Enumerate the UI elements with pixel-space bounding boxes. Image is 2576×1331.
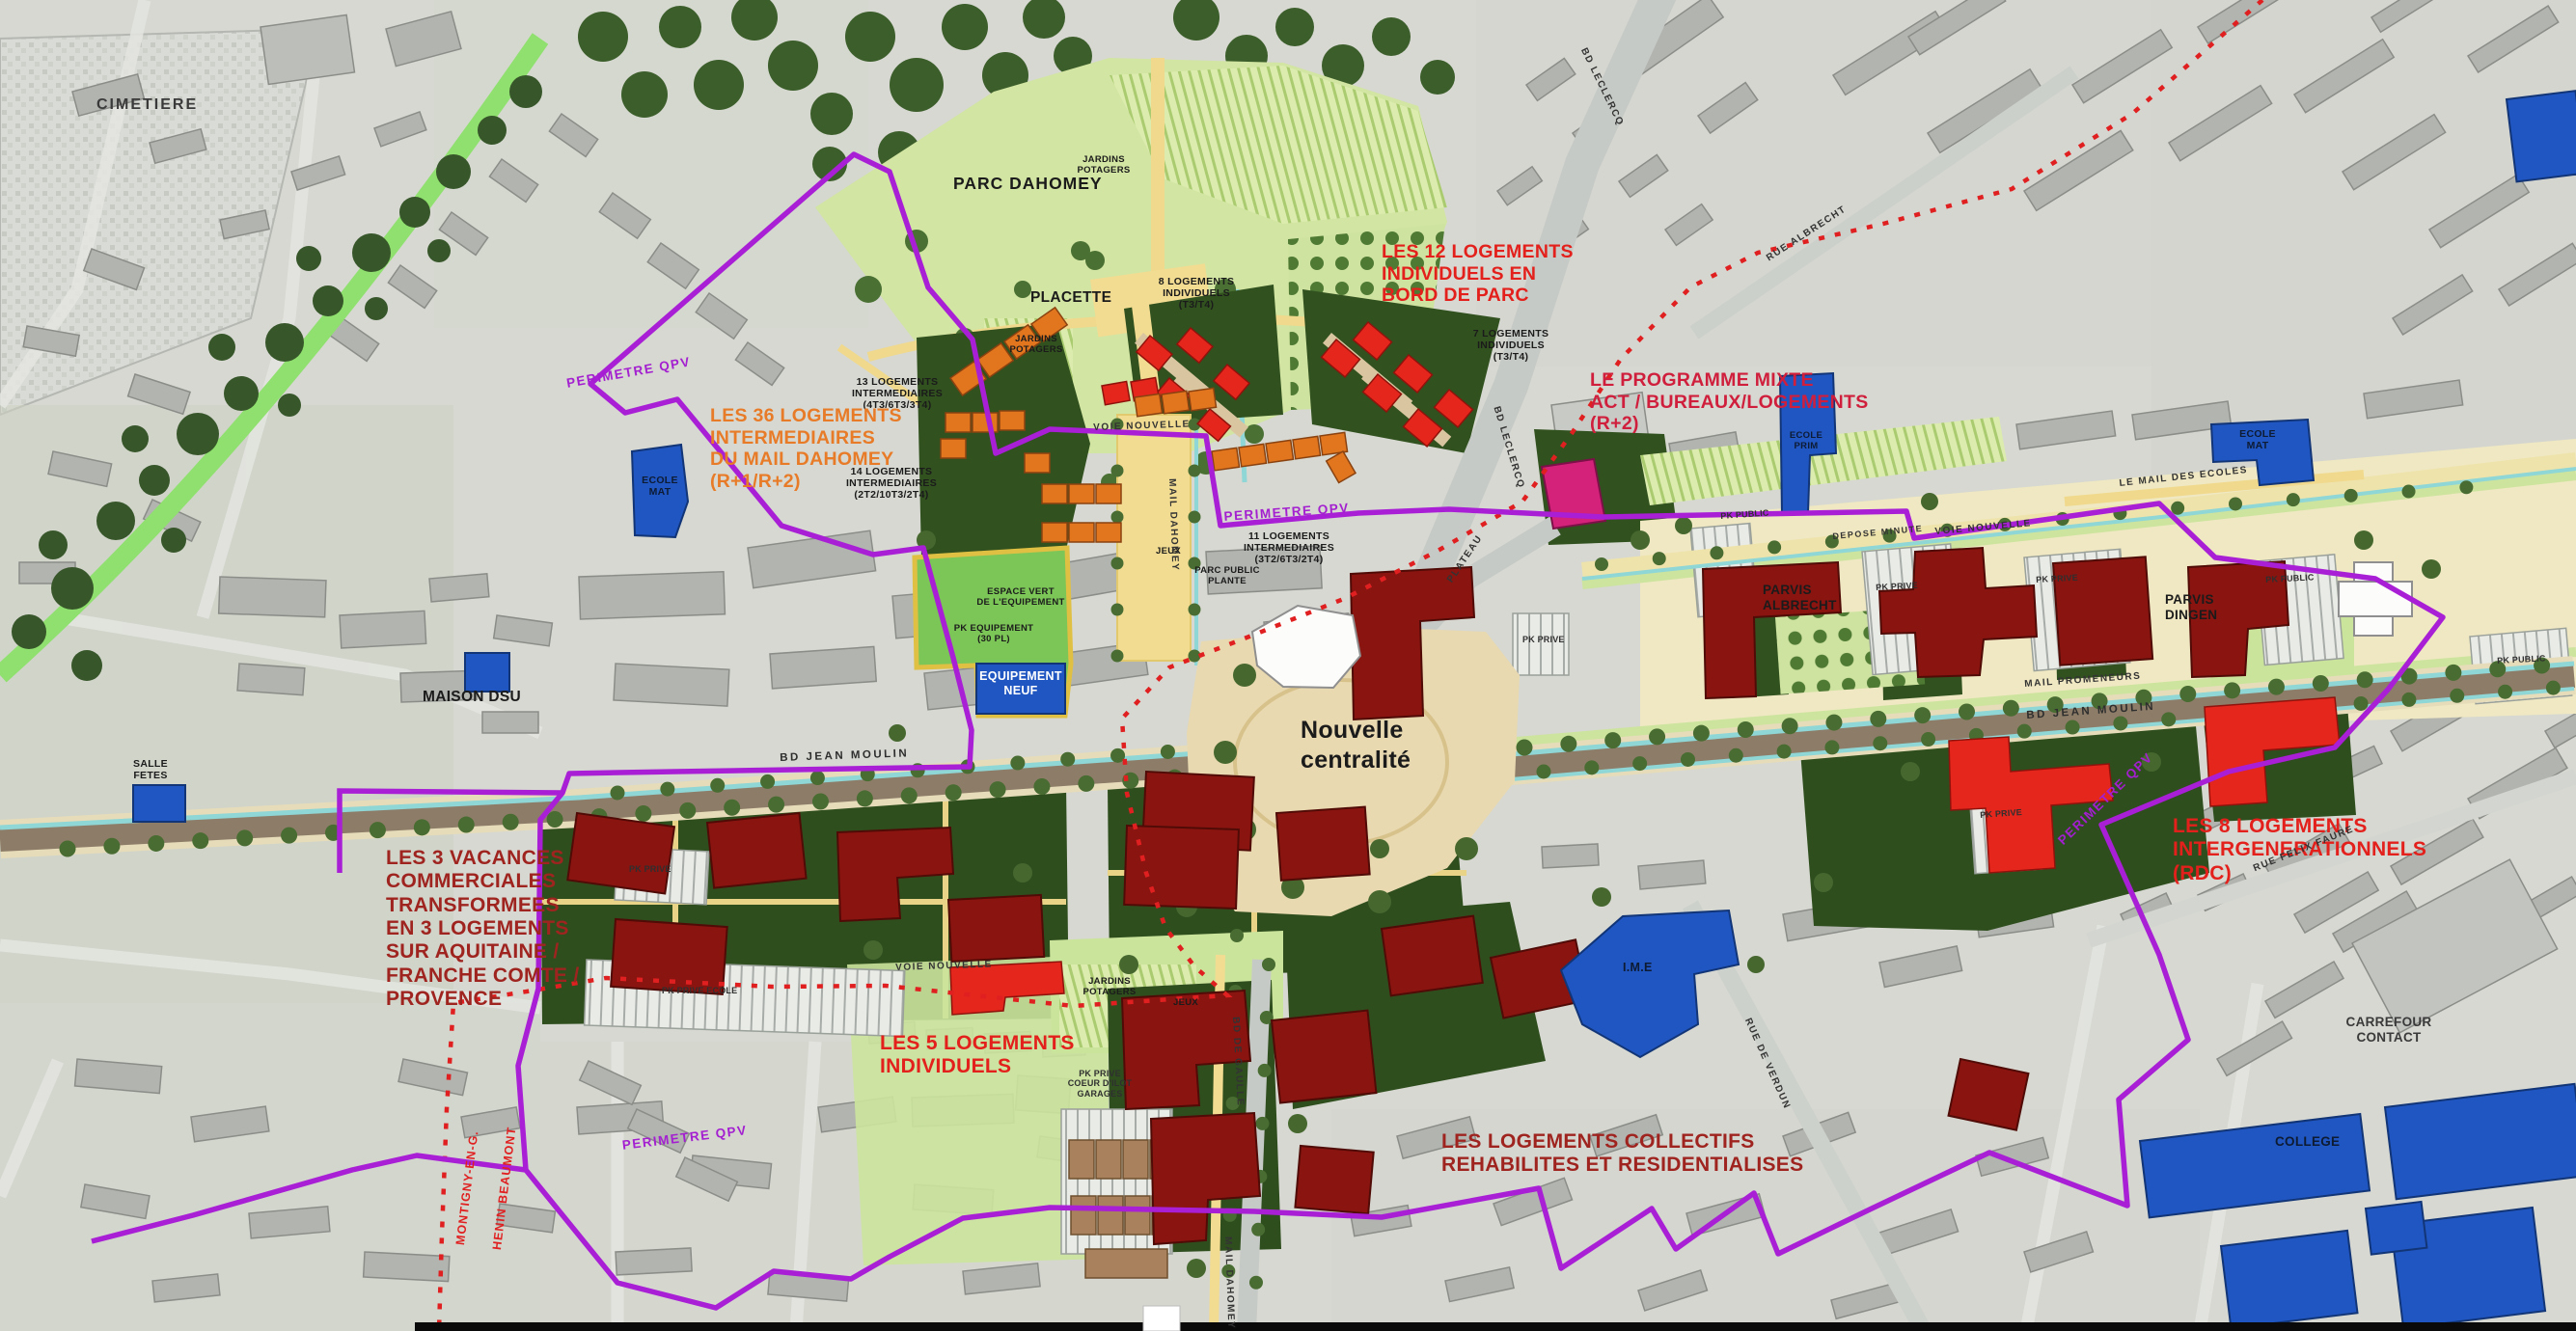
- placette-label: PLACETTE: [1030, 289, 1111, 307]
- annotation-vacances: LES 3 VACANCES COMMERCIALES TRANSFORMEES…: [386, 847, 580, 1012]
- map-graphics: [0, 0, 2576, 1331]
- ime-label: I.M.E: [1623, 961, 1653, 975]
- college-label: COLLEGE: [2275, 1134, 2340, 1150]
- program-8-logements-label: 8 LOGEMENTS INDIVIDUELS (T3/T4): [1154, 276, 1239, 312]
- pk-equipement-label: PK EQUIPEMENT (30 PL): [949, 623, 1038, 644]
- maison-dsu-label: MAISON DSU: [423, 689, 521, 706]
- jardins-potagers-label-2: JARDINS POTAGERS: [1005, 334, 1067, 355]
- annotation-les36: LES 36 LOGEMENTS INTERMEDIAIRES DU MAIL …: [710, 405, 902, 492]
- annotation-les12: LES 12 LOGEMENTS INDIVIDUELS EN BORD DE …: [1382, 241, 1574, 307]
- jardins-potagers-label-1: JARDINS POTAGERS: [1073, 154, 1135, 176]
- salle-fetes-label: SALLE FETES: [125, 758, 176, 781]
- annotation-programme-mixte: LE PROGRAMME MIXTE ACT / BUREAUX/LOGEMEN…: [1590, 369, 1869, 435]
- parvis-dingen-label: PARVIS DINGEN: [2165, 592, 2217, 622]
- espace-vert-label: ESPACE VERT DE L'EQUIPEMENT: [974, 586, 1067, 608]
- cimetiere-label: CIMETIERE: [96, 96, 198, 115]
- parc-public-plante-label: PARC PUBLIC PLANTE: [1191, 565, 1264, 586]
- pk-coeur-ilot-label: PK PRIVE COEUR D'ILOT GARAGES: [1055, 1069, 1144, 1099]
- ecole-mat-left-label: ECOLE MAT: [635, 475, 685, 498]
- nouvelle-centralite-label: Nouvelle centralité: [1301, 716, 1411, 776]
- pk-prive-label-5: PK PRIVE: [629, 864, 671, 874]
- parc-dahomey-label: PARC DAHOMEY: [953, 174, 1103, 193]
- equipement-neuf-label: EQUIPEMENT NEUF: [978, 669, 1063, 697]
- ecole-mat-right-label: ECOLE MAT: [2231, 428, 2285, 451]
- pk-prive-ecole-label: PK PRIVE ECOLE: [662, 986, 737, 995]
- urban-masterplan-map: CIMETIERE PARC DAHOMEY PLACETTE JARDINS …: [0, 0, 2576, 1331]
- program-11-logements-label: 11 LOGEMENTS INTERMEDIAIRES (3T2/6T3/2T4…: [1239, 530, 1339, 566]
- carrefour-contact-label: CARREFOUR CONTACT: [2343, 1015, 2435, 1045]
- annotation-les5: LES 5 LOGEMENTS INDIVIDUELS: [880, 1032, 1075, 1079]
- parvis-albrecht-label: PARVIS ALBRECHT: [1763, 583, 1837, 612]
- annotation-collectifs: LES LOGEMENTS COLLECTIFS REHABILITES ET …: [1441, 1130, 1803, 1178]
- pk-prive-label-3: PK PRIVE: [1522, 635, 1565, 644]
- jardins-potagers-label-3: JARDINS POTAGERS: [1075, 976, 1144, 997]
- jeux-label-2: JEUX: [1173, 997, 1198, 1008]
- ecole-prim-label: ECOLE PRIM: [1781, 430, 1831, 451]
- program-7-logements-label: 7 LOGEMENTS INDIVIDUELS (T3/T4): [1468, 328, 1553, 364]
